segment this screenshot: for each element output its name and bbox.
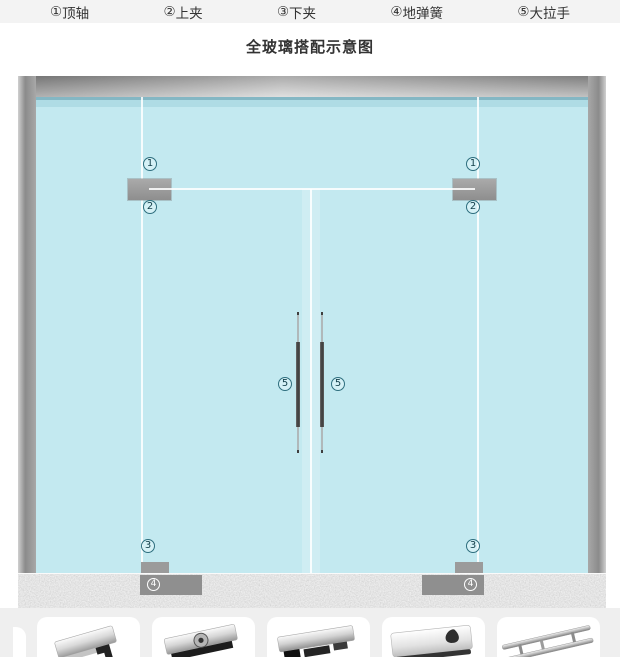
glass-divider-center (310, 189, 312, 573)
legend-label-3: 下夹 (289, 2, 316, 22)
glass-panel: 1 1 2 2 5 5 3 3 (36, 97, 588, 573)
granite-floor: 4 4 (18, 573, 606, 608)
legend-item-floor-spring: ④地弹簧 (390, 2, 443, 22)
bottom-clamp-left (141, 562, 169, 573)
legend-num-1: ① (50, 4, 62, 20)
legend-label-4: 地弹簧 (403, 2, 444, 22)
callout-floor-spring-left: 4 (147, 578, 160, 591)
product-card-floor-spring (382, 617, 485, 657)
legend-item-lower-clamp: ③下夹 (277, 2, 316, 22)
transom-line (149, 188, 475, 190)
legend-item-upper-clamp: ②上夹 (163, 2, 202, 22)
legend-num-4: ④ (390, 4, 402, 20)
product-card-handle (497, 617, 600, 657)
door-frame-right (588, 76, 606, 573)
product-thumbnail-strip (0, 608, 620, 657)
callout-upper-clamp-left: 2 (143, 200, 157, 214)
legend-num-5: ⑤ (517, 4, 529, 20)
legend-item-top-pivot: ①顶轴 (50, 2, 89, 22)
callout-handle-left: 5 (278, 377, 292, 391)
legend-bar: ①顶轴 ②上夹 ③下夹 ④地弹簧 ⑤大拉手 (0, 0, 620, 23)
callout-floor-spring-right: 4 (464, 578, 477, 591)
door-frame-left (18, 76, 36, 573)
product-detail-image: ①顶轴 ②上夹 ③下夹 ④地弹簧 ⑤大拉手 全玻璃搭配示意图 (0, 0, 620, 657)
page-title: 全玻璃搭配示意图 (0, 36, 620, 57)
callout-upper-clamp-right: 2 (466, 200, 480, 214)
legend-label-2: 上夹 (176, 2, 203, 22)
legend-label-5: 大拉手 (529, 2, 570, 22)
granite-texture (18, 574, 606, 608)
pull-handle-left (296, 312, 300, 453)
pull-handle-right (320, 312, 324, 453)
partial-card-edge (13, 627, 26, 657)
handle-grip (320, 342, 324, 427)
handle-grip (296, 342, 300, 427)
bottom-clamp-right (455, 562, 483, 573)
glass-top-shadow (36, 100, 588, 107)
floor-spring-left: 4 (140, 575, 202, 595)
door-diagram: 1 1 2 2 5 5 3 3 (18, 76, 606, 608)
double-tube-handle-photo (497, 617, 600, 657)
handle-rod-top (321, 312, 323, 342)
corner-pivot-clamp-photo (37, 617, 140, 657)
floor-spring-right: 4 (422, 575, 484, 595)
callout-lower-clamp-right: 3 (466, 539, 480, 553)
handle-rod-top (297, 312, 299, 342)
floor-spring-photo (382, 617, 485, 657)
top-patch-clamp-photo (152, 617, 255, 657)
legend-label-1: 顶轴 (62, 2, 89, 22)
product-card-upper-clamp (152, 617, 255, 657)
callout-lower-clamp-left: 3 (141, 539, 155, 553)
callout-top-pivot-left: 1 (143, 157, 157, 171)
product-card-lower-clamp (267, 617, 370, 657)
product-card-top-pivot (37, 617, 140, 657)
handle-rod-bottom (321, 427, 323, 453)
handle-rod-bottom (297, 427, 299, 453)
door-frame-top (18, 76, 606, 97)
glass-divider-left (141, 97, 143, 573)
callout-top-pivot-right: 1 (466, 157, 480, 171)
legend-item-handle: ⑤大拉手 (517, 2, 570, 22)
legend-num-2: ② (163, 4, 175, 20)
callout-handle-right: 5 (331, 377, 345, 391)
legend-num-3: ③ (277, 4, 289, 20)
bottom-patch-clamp-photo (267, 617, 370, 657)
